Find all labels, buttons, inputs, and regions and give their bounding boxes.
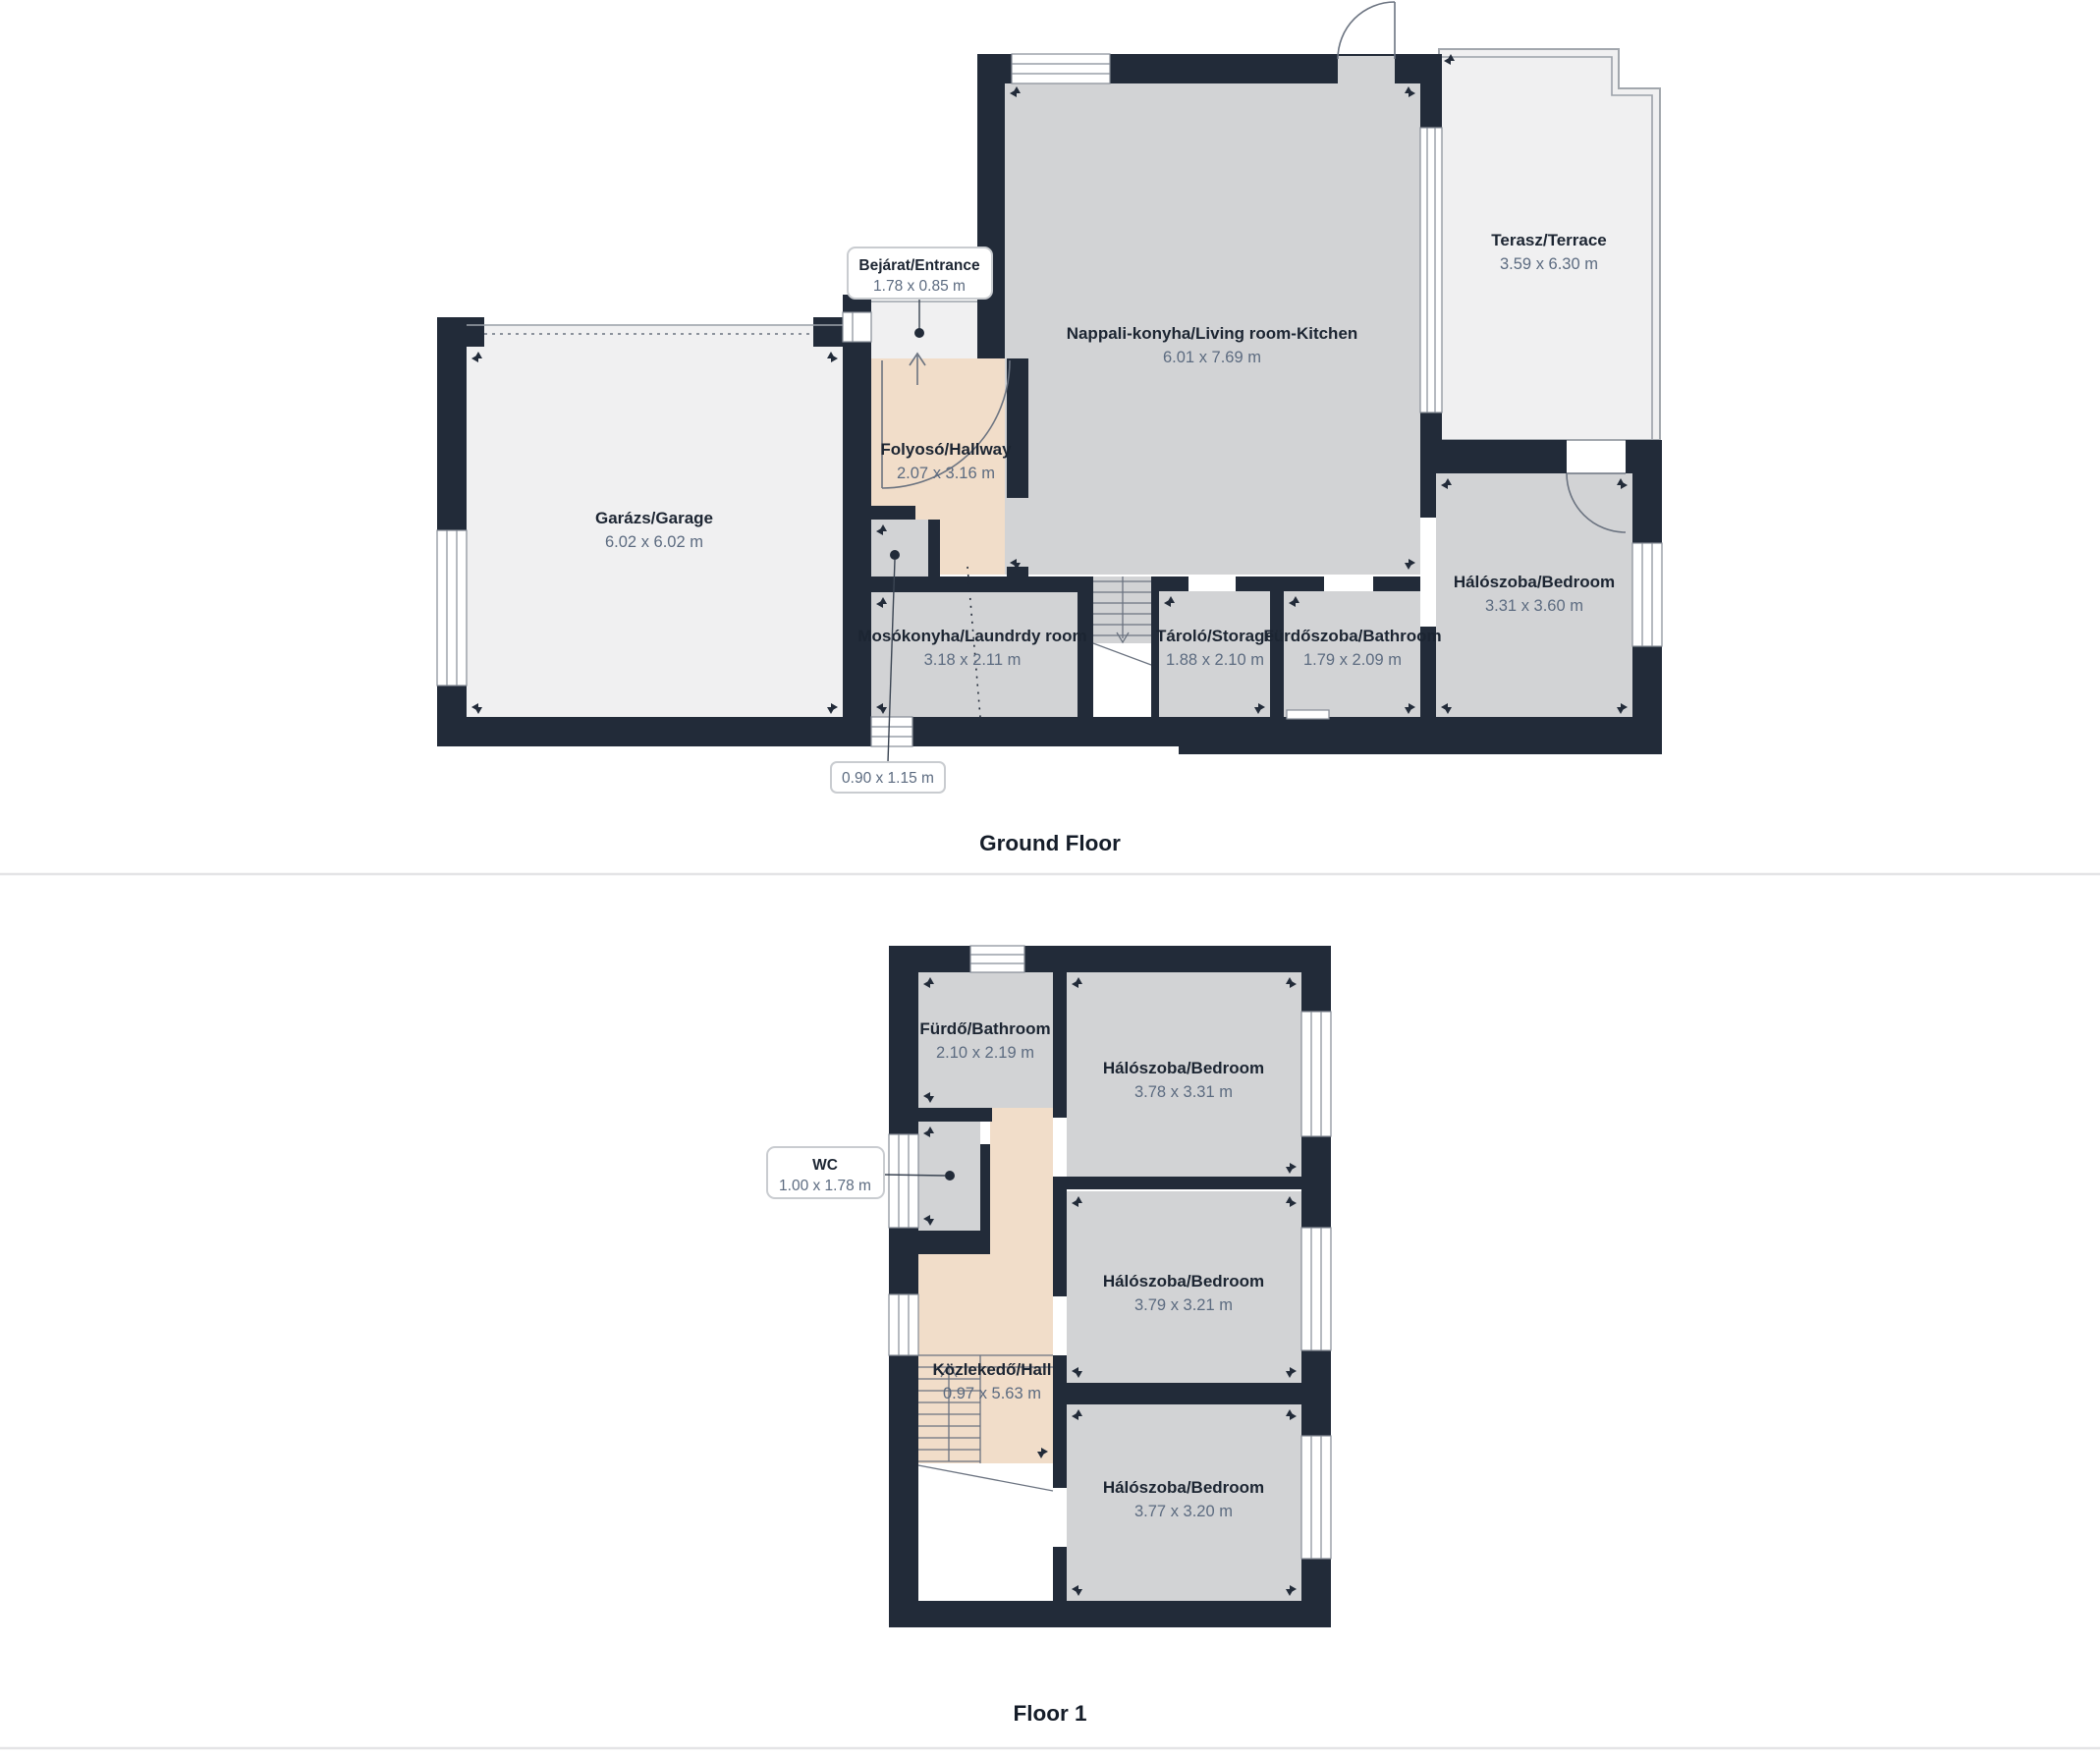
f1-bedroom3-label: Hálószoba/Bedroom — [1103, 1478, 1264, 1497]
storage-label: Tároló/Storage — [1156, 627, 1274, 645]
terrace-label: Terasz/Terrace — [1491, 231, 1607, 249]
ground-floor-caption: Ground Floor — [979, 831, 1121, 855]
storage-dims: 1.88 x 2.10 m — [1166, 651, 1264, 669]
f1-bedroom2-label: Hálószoba/Bedroom — [1103, 1272, 1264, 1291]
floorplan-image: Garázs/Garage 6.02 x 6.02 m Folyosó/Hall… — [0, 0, 2100, 1758]
living-dims: 6.01 x 7.69 m — [1163, 349, 1261, 366]
hallway-label: Folyosó/Hallway — [880, 440, 1012, 459]
room-ground-bedroom — [1436, 473, 1632, 719]
floor1-plan: Fürdő/Bathroom 2.10 x 2.19 m Hálószoba/B… — [767, 946, 1331, 1726]
f1-hall-label: Közlekedő/Hall — [933, 1360, 1052, 1379]
entrance-callout-label: Bejárat/Entrance — [858, 257, 980, 274]
f1-bedroom1-label: Hálószoba/Bedroom — [1103, 1059, 1264, 1077]
room-small-wc — [871, 520, 928, 577]
floor1-caption: Floor 1 — [1013, 1701, 1086, 1726]
f1-hall-dims: 0.97 x 5.63 m — [943, 1385, 1041, 1402]
ground-bathroom-label: Fürdőszoba/Bathroom — [1263, 627, 1441, 645]
small-wc-callout-dims: 0.90 x 1.15 m — [842, 770, 934, 787]
wc-callout-label: WC — [812, 1157, 838, 1174]
f1-bathroom-dims: 2.10 x 2.19 m — [936, 1044, 1034, 1062]
f1-bedroom1-dims: 3.78 x 3.31 m — [1134, 1083, 1233, 1101]
garage-label: Garázs/Garage — [595, 509, 713, 527]
f1-bedroom2-dims: 3.79 x 3.21 m — [1134, 1296, 1233, 1314]
f1-stairwell-void — [918, 1463, 1053, 1601]
living-label: Nappali-konyha/Living room-Kitchen — [1067, 324, 1358, 343]
terrace-dims: 3.59 x 6.30 m — [1500, 255, 1598, 273]
laundry-dims: 3.18 x 2.11 m — [924, 651, 1022, 669]
entrance-callout-dims: 1.78 x 0.85 m — [873, 278, 966, 295]
garage-dims: 6.02 x 6.02 m — [605, 533, 703, 551]
ground-floor-plan: Garázs/Garage 6.02 x 6.02 m Folyosó/Hall… — [437, 2, 1662, 855]
f1-bedroom3-dims: 3.77 x 3.20 m — [1134, 1503, 1233, 1520]
f1-bathroom-label: Fürdő/Bathroom — [919, 1019, 1050, 1038]
wc-callout-dims: 1.00 x 1.78 m — [779, 1178, 871, 1194]
hallway-dims: 2.07 x 3.16 m — [897, 465, 995, 482]
room-f1-bathroom — [918, 972, 1053, 1108]
ground-bedroom-label: Hálószoba/Bedroom — [1454, 573, 1615, 591]
ground-bedroom-dims: 3.31 x 3.60 m — [1485, 597, 1583, 615]
ground-bathroom-dims: 1.79 x 2.09 m — [1303, 651, 1402, 669]
